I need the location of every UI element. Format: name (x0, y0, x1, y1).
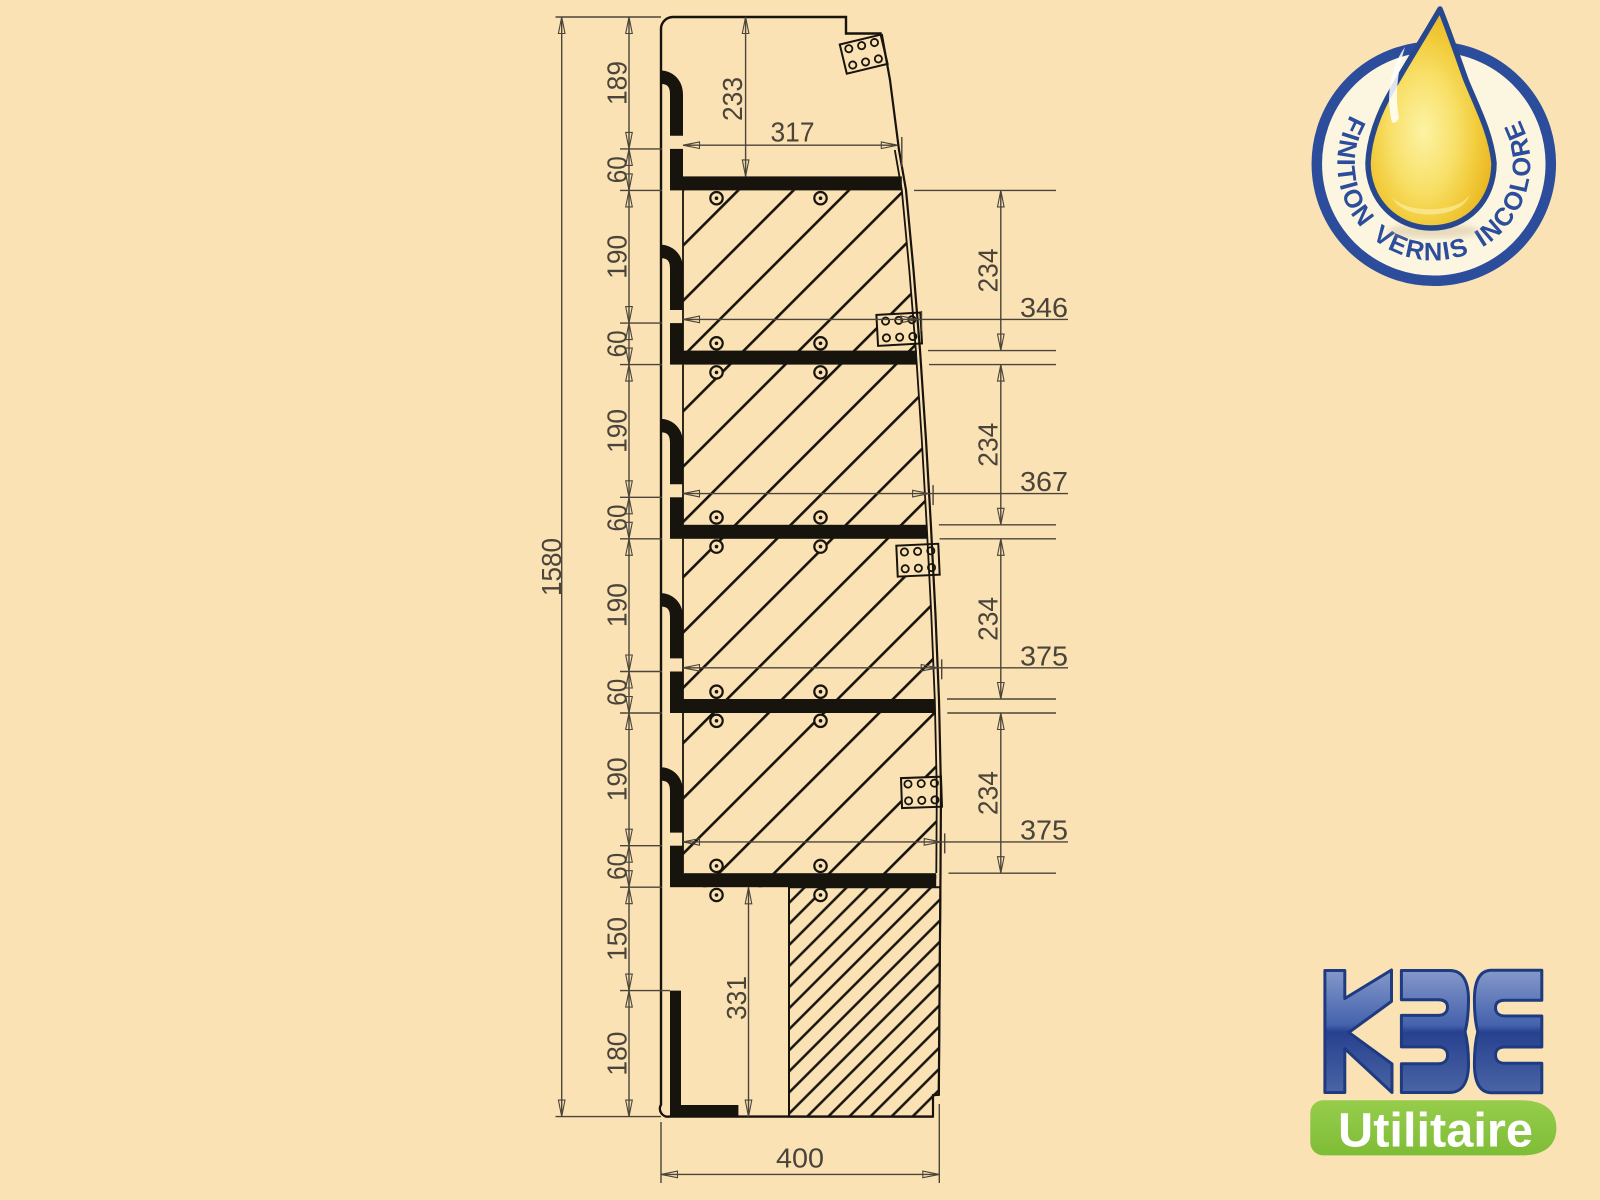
svg-text:234: 234 (973, 771, 1004, 815)
svg-text:400: 400 (776, 1143, 824, 1174)
svg-text:190: 190 (602, 583, 633, 627)
svg-text:190: 190 (602, 235, 633, 279)
svg-text:190: 190 (602, 409, 633, 453)
svg-text:150: 150 (602, 917, 633, 961)
svg-text:1580: 1580 (536, 538, 567, 596)
svg-text:60: 60 (602, 853, 633, 880)
svg-text:317: 317 (771, 117, 815, 148)
svg-text:375: 375 (1020, 814, 1068, 845)
svg-text:190: 190 (602, 757, 633, 801)
svg-text:Utilitaire: Utilitaire (1338, 1105, 1533, 1158)
svg-text:233: 233 (717, 77, 748, 121)
svg-text:346: 346 (1020, 292, 1068, 323)
svg-text:189: 189 (602, 61, 633, 105)
svg-text:367: 367 (1020, 466, 1068, 497)
svg-text:331: 331 (721, 976, 752, 1020)
svg-text:234: 234 (973, 423, 1004, 467)
svg-text:60: 60 (602, 505, 633, 532)
svg-text:60: 60 (602, 156, 633, 183)
svg-text:60: 60 (602, 679, 633, 706)
svg-text:60: 60 (602, 330, 633, 357)
svg-text:234: 234 (973, 249, 1004, 293)
svg-text:375: 375 (1020, 640, 1068, 671)
svg-text:180: 180 (602, 1032, 633, 1076)
svg-text:234: 234 (973, 597, 1004, 641)
